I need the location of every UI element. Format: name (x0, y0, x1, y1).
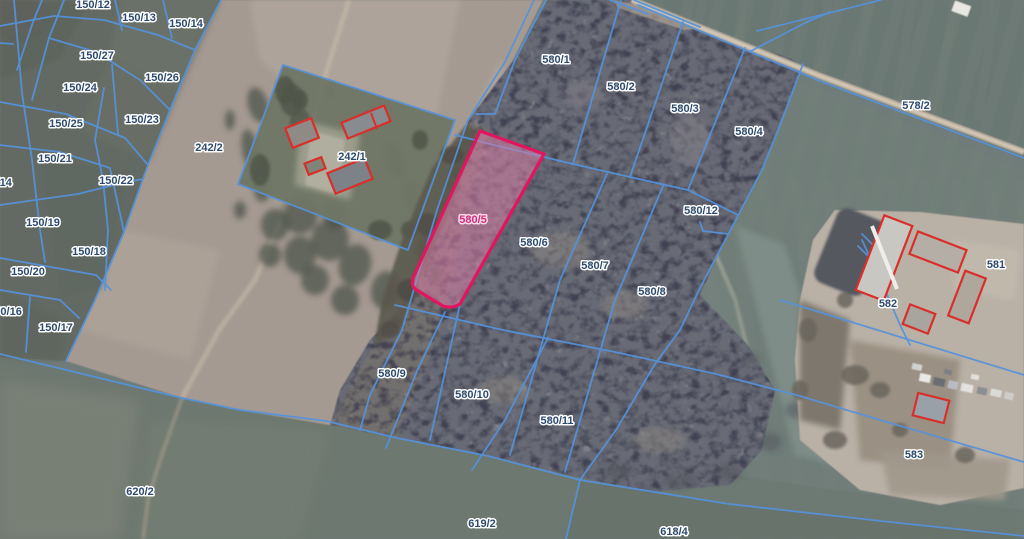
svg-text:580/5: 580/5 (459, 214, 487, 226)
svg-text:242/1: 242/1 (338, 151, 366, 163)
svg-text:150/23: 150/23 (125, 114, 159, 126)
svg-text:583: 583 (905, 449, 923, 461)
svg-text:242/2: 242/2 (195, 142, 223, 154)
svg-text:150/21: 150/21 (38, 153, 72, 165)
svg-text:581: 581 (987, 259, 1005, 271)
svg-text:580/1: 580/1 (542, 54, 570, 66)
svg-text:150/18: 150/18 (72, 246, 106, 258)
svg-text:580/9: 580/9 (378, 368, 406, 380)
svg-text:150/20: 150/20 (11, 266, 45, 278)
svg-text:150/27: 150/27 (80, 50, 114, 62)
svg-text:150/17: 150/17 (39, 322, 73, 334)
svg-text:150/12: 150/12 (76, 0, 110, 11)
svg-text:580/4: 580/4 (735, 126, 763, 138)
svg-text:620/2: 620/2 (126, 486, 154, 498)
svg-text:150/13: 150/13 (122, 12, 156, 24)
svg-text:580/10: 580/10 (455, 389, 489, 401)
svg-text:580/7: 580/7 (581, 260, 609, 272)
svg-text:580/2: 580/2 (607, 81, 635, 93)
svg-text:580/6: 580/6 (520, 237, 548, 249)
svg-text:580/11: 580/11 (540, 415, 573, 427)
svg-text:150/26: 150/26 (145, 72, 179, 84)
svg-text:582: 582 (879, 298, 897, 310)
svg-text:619/2: 619/2 (468, 518, 496, 530)
svg-text:150/19: 150/19 (26, 217, 60, 229)
svg-text:580/8: 580/8 (638, 286, 666, 298)
svg-text:150/14: 150/14 (169, 18, 204, 30)
svg-text:150/25: 150/25 (49, 118, 83, 130)
svg-text:150/24: 150/24 (63, 82, 98, 94)
svg-text:580/3: 580/3 (671, 103, 699, 115)
svg-text:618/4: 618/4 (660, 526, 688, 538)
svg-text:150/16: 150/16 (0, 306, 22, 318)
svg-text:580/12: 580/12 (684, 205, 718, 217)
svg-text:150/22: 150/22 (99, 175, 133, 187)
svg-text:578/2: 578/2 (902, 100, 930, 112)
svg-text:150/14: 150/14 (0, 177, 13, 189)
